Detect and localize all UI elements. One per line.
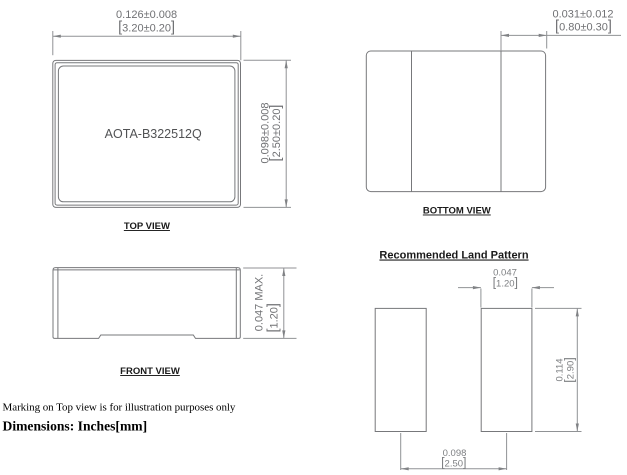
svg-text:AOTA-B322512Q: AOTA-B322512Q: [105, 127, 202, 141]
svg-text:BOTTOM VIEW: BOTTOM VIEW: [423, 206, 491, 217]
svg-text:[2.50±0.20]: [2.50±0.20]: [268, 105, 284, 162]
svg-text:[1.20]: [1.20]: [266, 303, 282, 332]
svg-text:[3.20±0.20]: [3.20±0.20]: [118, 20, 175, 36]
svg-text:Dimensions: Inches[mm]: Dimensions: Inches[mm]: [3, 419, 148, 434]
svg-text:0.047 MAX.: 0.047 MAX.: [254, 274, 266, 331]
svg-text:0.098±0.008: 0.098±0.008: [260, 102, 272, 163]
svg-text:0.031±0.012: 0.031±0.012: [552, 9, 613, 21]
svg-text:[0.80±0.30]: [0.80±0.30]: [555, 19, 612, 35]
svg-text:0.114: 0.114: [555, 358, 566, 381]
svg-text:Marking on Top view is for ill: Marking on Top view is for illustration …: [3, 402, 236, 414]
svg-text:[1.20]: [1.20]: [493, 275, 518, 289]
svg-text:TOP VIEW: TOP VIEW: [124, 221, 170, 232]
svg-text:FRONT VIEW: FRONT VIEW: [120, 366, 180, 377]
svg-text:[2.50]: [2.50]: [441, 455, 466, 469]
svg-text:0.047: 0.047: [493, 268, 517, 279]
svg-text:0.126±0.008: 0.126±0.008: [116, 9, 177, 21]
svg-text:[2.90]: [2.90]: [563, 357, 577, 382]
svg-text:Recommended Land Pattern: Recommended Land Pattern: [379, 250, 528, 262]
